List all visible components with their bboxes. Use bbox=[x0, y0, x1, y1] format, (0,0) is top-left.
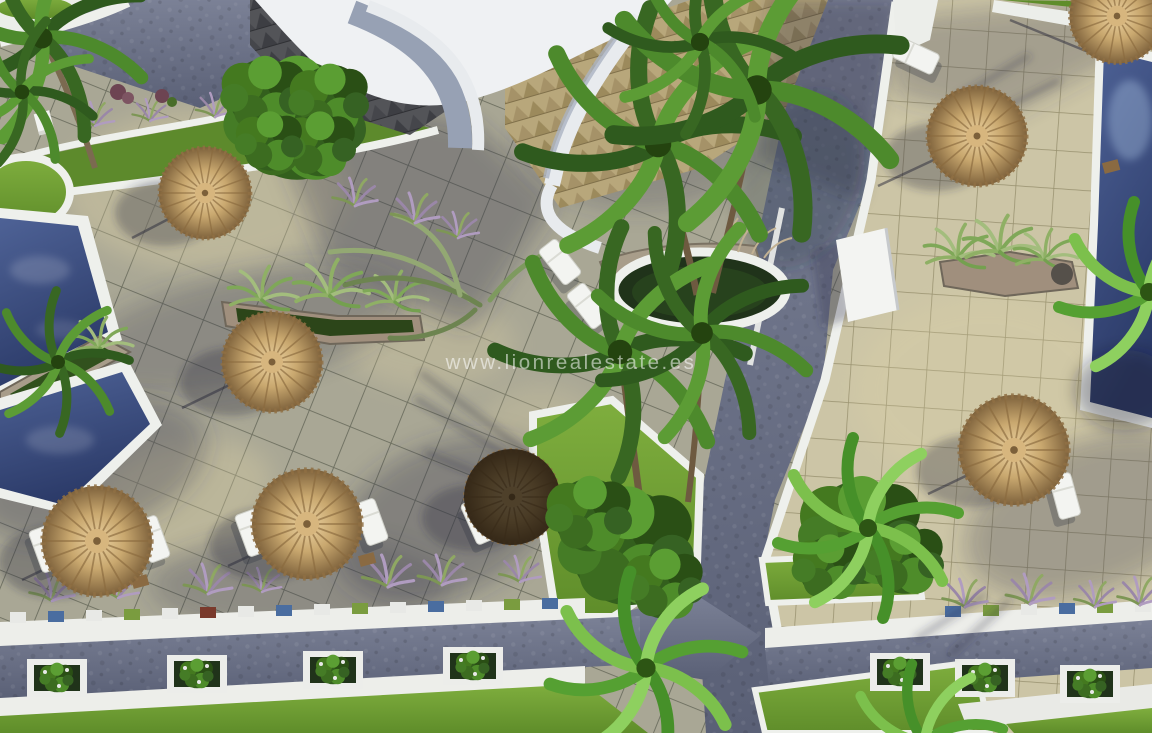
straw-parasol bbox=[159, 147, 251, 239]
aerial-render-scene: www.lionrealestate.es bbox=[0, 0, 1152, 733]
straw-parasol bbox=[927, 86, 1027, 186]
parasol-shade-overlay bbox=[464, 449, 560, 545]
straw-parasol bbox=[252, 469, 362, 579]
straw-parasol bbox=[959, 395, 1069, 505]
render-image: www.lionrealestate.es bbox=[0, 0, 1152, 733]
decor-rock bbox=[1051, 263, 1073, 285]
straw-parasol bbox=[222, 312, 322, 412]
watermark-text: www.lionrealestate.es bbox=[445, 351, 697, 374]
straw-parasol bbox=[42, 486, 152, 596]
